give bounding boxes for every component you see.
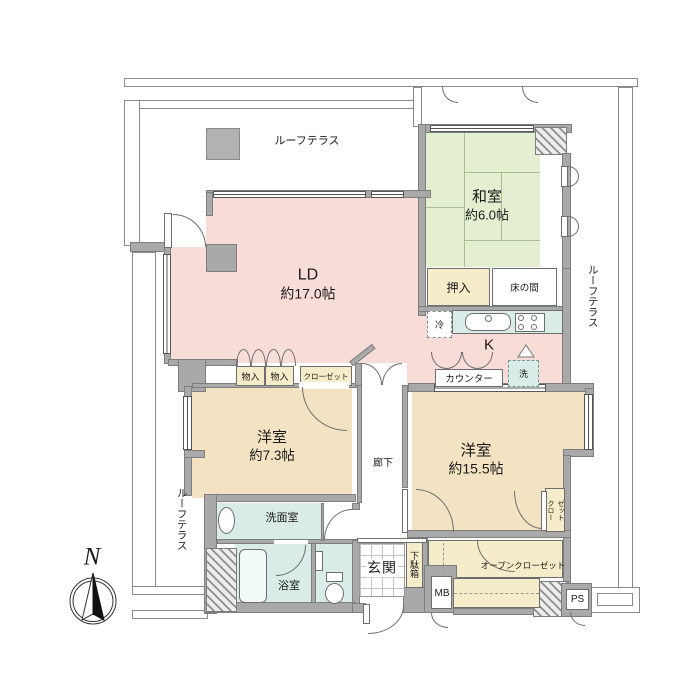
bathtub-icon — [239, 549, 267, 603]
window — [163, 254, 171, 354]
storage1-label: 物入 — [241, 370, 259, 383]
ld-size: 約17.0帖 — [280, 285, 335, 303]
door-leaf — [164, 213, 172, 248]
japanese-size: 約6.0帖 — [465, 207, 509, 223]
terrace-rail-stub-a — [132, 586, 208, 595]
structural-hatch — [206, 548, 237, 612]
window — [371, 191, 404, 198]
room-label-hallway: 廊下 — [373, 458, 393, 471]
wall-segment — [206, 192, 213, 216]
refrigerator-icon: 冷 — [427, 311, 452, 338]
washbasin-icon — [218, 507, 235, 534]
counter-label: カウンター — [445, 371, 493, 385]
entrance-step — [357, 538, 427, 543]
bedroom155-name: 洋室 — [448, 442, 503, 461]
room-label-bathroom: 浴室 — [278, 580, 300, 594]
counter-box: カウンター — [435, 369, 503, 387]
shoe-box-label: 下駄箱 — [408, 551, 421, 578]
wall-segment — [562, 268, 571, 390]
burner-icon — [518, 315, 524, 321]
door-leaf — [402, 489, 408, 533]
toilet-cabinet — [315, 551, 323, 571]
bedroom73-name: 洋室 — [249, 429, 295, 448]
tatami-line — [464, 240, 540, 241]
open-closet-label: オープンクローゼット — [481, 561, 566, 572]
door-arc — [442, 87, 458, 103]
shelf-dashed-line — [454, 593, 539, 594]
washer-label: 洗 — [519, 367, 528, 380]
terrace-rail-top-inner — [124, 100, 421, 109]
compass-icon — [63, 539, 133, 634]
terrace-rail-connector — [413, 87, 422, 127]
door-arc — [570, 612, 585, 626]
oshiire-label: 押入 — [446, 279, 470, 296]
structural-hatch — [535, 127, 567, 155]
door-arc — [568, 166, 579, 187]
wall-segment — [453, 608, 540, 615]
room-label-bedroom155: 洋室 約15.5帖 — [448, 442, 503, 479]
refrigerator-label: 冷 — [435, 318, 444, 331]
faucet-icon — [485, 315, 492, 322]
window — [213, 191, 366, 198]
terrace-label-top: ルーフテラス — [274, 135, 339, 149]
floor-plan: 押入 床の間 冷 カウンター 洗 物入 物入 クローゼット クローゼット 下駄箱… — [0, 0, 700, 700]
door-arc — [362, 363, 382, 385]
terrace-rail-left-lower — [132, 252, 156, 588]
tatami-line — [464, 172, 540, 173]
toilet-tank-icon — [326, 572, 343, 582]
room-label-entrance: 玄関 — [366, 559, 398, 577]
pillar — [206, 244, 237, 272]
terrace-label-left: ルーフテラス — [174, 488, 187, 551]
storage-box-2: 物入 — [265, 366, 294, 386]
tokonoma-label: 床の間 — [510, 280, 539, 294]
wall-segment — [402, 385, 408, 488]
terrace-rail-left-upper — [124, 100, 140, 246]
door-arc — [522, 87, 538, 103]
bedroom73-size: 約7.3帖 — [249, 448, 295, 465]
pipe-space-label: PS — [571, 594, 584, 605]
washer-box: 洗 — [508, 360, 539, 387]
wall-segment — [352, 503, 360, 510]
entrance-door-arc — [368, 606, 404, 634]
japanese-name: 和室 — [465, 189, 509, 208]
terrace-rail-right — [618, 87, 633, 589]
room-bedroom155-bay — [563, 390, 585, 452]
folding-door-icon — [517, 344, 535, 358]
burner-icon — [531, 324, 537, 330]
oshiire-closet: 押入 — [427, 268, 490, 306]
bedroom155-size: 約15.5帖 — [448, 461, 503, 479]
burner-icon — [531, 315, 537, 321]
terrace-label-right: ルーフテラス — [585, 265, 598, 328]
door-arc — [431, 613, 448, 628]
wall-segment — [355, 363, 362, 386]
burner-icon — [518, 324, 524, 330]
closet-vertical-col2: ゼット — [555, 500, 565, 521]
window — [584, 394, 593, 450]
door-opening — [274, 540, 308, 544]
wall-segment — [418, 124, 426, 316]
terrace-rail-bottom-right-inner — [597, 593, 633, 606]
meter-box-label: MB — [435, 588, 450, 601]
open-closet-dashed-divider — [443, 543, 444, 575]
door-leaf — [561, 166, 568, 187]
wall-segment — [204, 494, 356, 502]
closet-label: クローゼット — [304, 371, 349, 382]
wall-segment — [184, 450, 205, 458]
ld-name: LD — [280, 265, 335, 285]
room-label-washroom: 洗面室 — [266, 512, 299, 526]
open-closet-lower-shelf — [453, 578, 540, 608]
door-arc — [324, 509, 352, 540]
storage2-label: 物入 — [270, 370, 288, 383]
terrace-rail-stub-b — [132, 610, 208, 619]
door-leaf — [561, 216, 568, 237]
terrace-equipment-box — [206, 128, 240, 160]
room-label-bedroom73: 洋室 約7.3帖 — [249, 429, 295, 465]
closet-vertical-box: クローゼット — [545, 488, 565, 532]
room-label-japanese: 和室 約6.0帖 — [465, 189, 509, 224]
toilet-bowl-icon — [325, 583, 344, 604]
shoe-box: 下駄箱 — [406, 540, 423, 588]
tokonoma-alcove: 床の間 — [492, 268, 557, 306]
terrace-rail-top — [124, 78, 638, 87]
wall-segment — [357, 385, 362, 503]
window — [183, 396, 192, 450]
room-label-kitchen: K — [484, 337, 494, 356]
storage-box-1: 物入 — [236, 366, 265, 386]
door-arc — [382, 363, 402, 385]
room-label-living-dining: LD 約17.0帖 — [280, 265, 335, 303]
door-arc — [568, 216, 579, 237]
tatami-line — [426, 207, 464, 208]
pipe-space-box: PS — [566, 589, 589, 610]
window — [430, 125, 534, 132]
